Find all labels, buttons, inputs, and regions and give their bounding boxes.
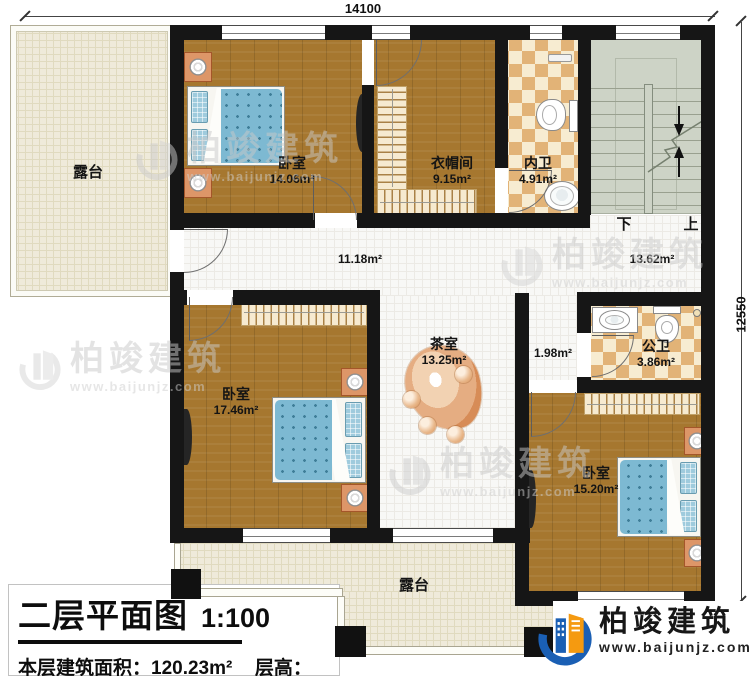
door-opening	[362, 38, 374, 85]
terrace-pillar	[171, 569, 201, 599]
stool	[403, 391, 420, 408]
window	[616, 25, 680, 40]
bed	[272, 397, 366, 483]
wall	[170, 25, 184, 230]
room-label-bedroom-top: 卧室 14.06m²	[270, 155, 315, 186]
wall	[362, 85, 374, 228]
floor-area-value: 120.23m²	[151, 658, 232, 676]
terrace-railing	[364, 646, 526, 655]
stool	[455, 366, 472, 383]
door-opening	[577, 333, 591, 377]
room-label-terrace-top: 露台	[73, 164, 103, 182]
title-underline	[18, 640, 242, 644]
wall	[577, 380, 715, 393]
nightstand	[184, 168, 212, 198]
wall	[233, 290, 375, 305]
stairs-up-label: 上	[683, 213, 698, 234]
plan-title: 二层平面图	[18, 589, 188, 637]
bed	[617, 457, 701, 537]
wall	[357, 213, 374, 228]
terrace-pillar	[335, 626, 366, 657]
wall	[495, 25, 508, 168]
dimension-line-top	[25, 16, 715, 17]
nightstand	[184, 52, 212, 82]
wall	[701, 25, 715, 608]
terrace-railing	[337, 596, 345, 627]
stairs-down-label: 下	[616, 213, 631, 234]
room-corridor	[528, 295, 578, 387]
window	[222, 25, 325, 40]
wall	[577, 292, 715, 306]
door-opening	[170, 230, 184, 272]
bathroom-fixture	[693, 309, 701, 317]
room-label-bedroom-left: 卧室 17.46m²	[214, 386, 259, 417]
brand-logo: 柏竣建筑 www.baijunjz.com	[537, 606, 750, 668]
bed	[187, 86, 285, 166]
wall	[577, 292, 591, 333]
window	[372, 25, 410, 40]
wardrobe	[377, 189, 477, 215]
plan-stats: 本层建筑面积：120.23m² 层高：3.3m	[18, 653, 339, 676]
stool	[447, 426, 464, 443]
floor-plan: 露台 卧室 14.06m² 衣帽间 9.15m² 内卫 4.91m² 11.18…	[0, 0, 750, 676]
window	[243, 528, 330, 543]
room-label-stair-hall: 13.62m²	[630, 252, 675, 266]
brand-website: www.baijunjz.com	[599, 639, 750, 655]
room-label-bedroom-right: 卧室 15.20m²	[574, 465, 619, 496]
room-label-tea-room: 茶室 13.25m²	[422, 336, 467, 367]
wall	[578, 25, 591, 215]
dimension-label-width: 14100	[318, 1, 408, 16]
wall	[374, 213, 590, 228]
brand-name: 柏竣建筑	[599, 606, 750, 639]
wall	[170, 213, 315, 228]
wardrobe	[377, 86, 407, 190]
bathroom-fixture	[548, 54, 572, 62]
pillow	[191, 91, 208, 123]
room-label-bath-public: 公卫 3.86m²	[637, 338, 675, 369]
terrace-railing	[174, 543, 181, 571]
wall	[170, 272, 184, 543]
toilet	[536, 97, 578, 135]
room-terrace-top	[10, 25, 174, 297]
door-opening	[495, 168, 508, 213]
room-label-corridor: 1.98m²	[534, 346, 572, 360]
window	[530, 25, 562, 40]
window	[393, 528, 493, 543]
room-label-hallway: 11.18m²	[338, 252, 382, 266]
nightstand	[341, 368, 368, 396]
room-label-cloakroom: 衣帽间 9.15m²	[431, 155, 473, 186]
plan-scale: 1:100	[201, 603, 270, 634]
dimension-label-height: 12550	[734, 285, 749, 345]
stool	[419, 417, 436, 434]
room-label-terrace-bottom: 露台	[399, 577, 429, 595]
wall	[170, 290, 187, 305]
wardrobe	[584, 393, 700, 415]
bed-blanket	[221, 89, 282, 163]
wall	[515, 293, 529, 593]
nightstand	[341, 484, 368, 512]
sink	[599, 310, 630, 330]
brand-logo-icon	[537, 606, 593, 668]
room-label-bath-inner: 内卫 4.91m²	[519, 155, 557, 186]
wall	[367, 290, 380, 543]
terrace-railing	[199, 588, 343, 597]
